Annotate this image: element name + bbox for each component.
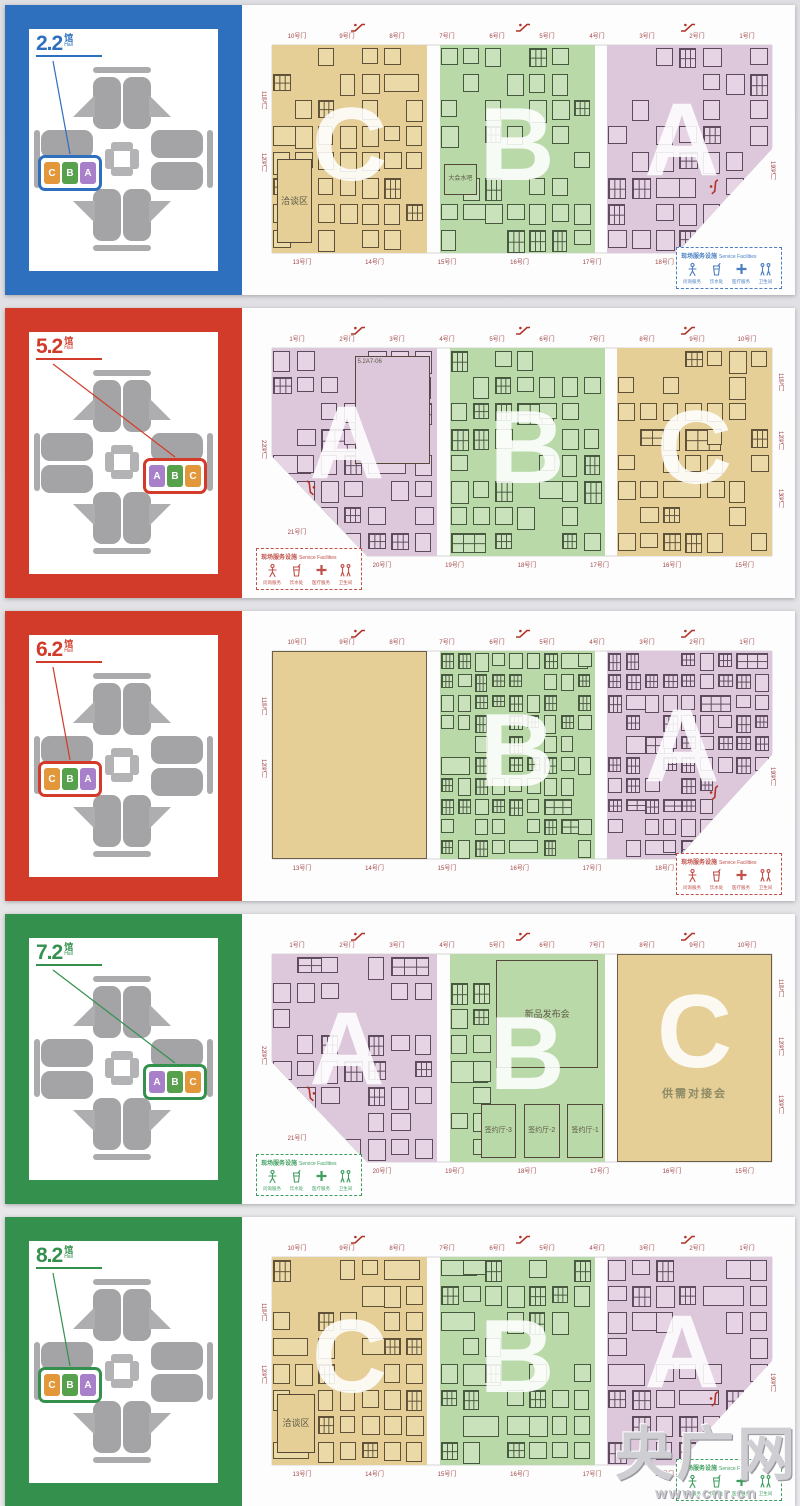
booth [473, 507, 490, 525]
booth [681, 715, 695, 731]
booth [679, 126, 697, 143]
booth [663, 715, 678, 732]
hall-suffix-en: Hall [64, 952, 73, 957]
hall-label: 5.2 馆Hall [36, 337, 102, 360]
gate-label: 8号门 [639, 940, 654, 949]
booth [463, 74, 479, 93]
booth [344, 1061, 363, 1082]
venue-center [111, 167, 133, 176]
service-legend: 现场服务设施Service Facilities问询服务饮水处医疗服务卫生间 [256, 1154, 362, 1196]
booth [527, 653, 540, 668]
booth [755, 695, 769, 710]
service-legend: 现场服务设施Service Facilities问询服务饮水处医疗服务卫生间 [676, 247, 782, 289]
gate-label: 3号门 [639, 637, 654, 646]
hall-petal [151, 1342, 203, 1370]
gate-label: 15号门 [438, 257, 457, 266]
zone-chip-B: B [167, 1071, 183, 1093]
venue-minimap: CBA [29, 1241, 218, 1483]
hall-petal [123, 189, 151, 241]
hall-petal [151, 1039, 203, 1067]
area-label: 新品发布会 [496, 960, 598, 1068]
gate-label: 11号门 [259, 1303, 268, 1321]
hall-label: 8.2 馆Hall [36, 1246, 102, 1269]
zone-C: C [617, 348, 772, 556]
booth [475, 799, 489, 816]
legend-item-label: 卫生间 [759, 884, 773, 890]
zone-chip-B: B [62, 162, 78, 184]
booth [485, 1260, 502, 1283]
booth [517, 507, 534, 530]
gate-label: 5号门 [489, 334, 504, 343]
booth [632, 1416, 651, 1437]
gate-label: 18号门 [518, 1166, 537, 1175]
booth [492, 778, 505, 795]
venue-center [105, 1058, 114, 1078]
booth [729, 403, 746, 421]
booth [451, 533, 486, 553]
booth [441, 1312, 475, 1331]
booth [391, 957, 429, 977]
escalator-icon [680, 19, 696, 37]
legend-item-label: 饮水处 [710, 884, 724, 890]
venue-center [130, 452, 139, 472]
gate-label: 12号门 [259, 153, 268, 172]
booth [656, 152, 675, 172]
booth [451, 1035, 467, 1055]
booth [663, 695, 678, 713]
booth [632, 230, 651, 250]
booth [415, 983, 432, 1000]
area-label: 5.2A7-06 [355, 356, 431, 464]
zone-B: B [440, 1257, 595, 1465]
gate-label: 17号门 [590, 1166, 609, 1175]
booth [529, 1390, 545, 1408]
gate-label: 3号门 [639, 31, 654, 40]
gate-label: 1号门 [739, 31, 754, 40]
booth [318, 230, 336, 252]
booth [707, 403, 723, 422]
booth [561, 757, 575, 771]
venue-minimap: CBA [29, 635, 218, 877]
booth [441, 230, 457, 252]
booth [391, 533, 409, 550]
hall-petal [93, 683, 121, 735]
booth [384, 1286, 401, 1308]
booth [561, 674, 574, 691]
zone-chip-A: A [149, 1071, 165, 1093]
zone-B: 大会水吧B [440, 45, 595, 253]
venue-center [111, 773, 133, 782]
booth [509, 778, 522, 792]
booth [492, 674, 505, 687]
gate-label: 5号门 [539, 1243, 554, 1252]
hall-petal [93, 1098, 121, 1150]
booth [495, 377, 511, 394]
legend-title-en: Service Facilities [299, 1161, 337, 1167]
hall-petal [123, 492, 151, 544]
booth [718, 736, 733, 750]
booth [295, 100, 312, 119]
booth [517, 351, 533, 372]
booth [473, 403, 490, 419]
hall-petal [41, 1039, 93, 1067]
booth [578, 840, 591, 858]
booth [584, 533, 601, 552]
booth [273, 1260, 291, 1282]
gate-label: 1号门 [739, 637, 754, 646]
booth [584, 377, 602, 394]
booth [736, 674, 750, 689]
booth [663, 840, 676, 853]
booth [492, 653, 504, 666]
booth [507, 1286, 525, 1308]
booth [539, 455, 555, 472]
venue-center [130, 1058, 139, 1078]
booth [362, 152, 380, 171]
booth [750, 126, 768, 146]
gate-label: 10号门 [738, 334, 757, 343]
hall-corner-triangle [73, 807, 95, 829]
booth [608, 178, 625, 199]
booth [608, 1390, 625, 1408]
hall-cap [93, 245, 151, 251]
zone-B: 新品发布会签约厅-3签约厅-2签约厅-1B [450, 954, 605, 1162]
legend-title-en: Service Facilities [719, 1466, 757, 1472]
gate-label: 11号门 [776, 979, 785, 997]
booth [384, 1364, 400, 1384]
booth [750, 1260, 767, 1281]
hall-petal [151, 768, 203, 796]
gate-label: 13号门 [776, 489, 785, 508]
booth [618, 377, 634, 393]
booth [415, 507, 434, 525]
booth [509, 695, 522, 712]
booth [473, 1009, 489, 1025]
booth [451, 1113, 468, 1129]
gate-label: 7号门 [439, 637, 454, 646]
hall-cap [34, 433, 40, 491]
hall-petal [151, 736, 203, 764]
hall-corner-triangle [73, 504, 95, 526]
gate-label: 13号门 [293, 1469, 312, 1478]
legend-title: 现场服务设施Service Facilities [261, 552, 357, 561]
venue-center [105, 1361, 114, 1381]
escalator-icon [680, 322, 696, 340]
booth [544, 674, 557, 690]
booth [707, 351, 723, 367]
booth [362, 74, 380, 94]
booth [626, 653, 639, 670]
escalator-icon [350, 19, 366, 37]
booth [527, 695, 540, 714]
booth [529, 204, 545, 225]
booth [700, 757, 713, 771]
booth [663, 377, 679, 395]
booth [340, 74, 356, 97]
booth [473, 1061, 491, 1082]
booth [729, 507, 746, 526]
booth [529, 1312, 545, 1335]
hall-petal [93, 77, 121, 129]
hall-cap [93, 673, 151, 679]
gate-label: 16号门 [510, 1469, 529, 1478]
booth [458, 840, 470, 858]
booth [318, 204, 335, 223]
gate-label: 7号门 [589, 334, 604, 343]
booth [656, 1312, 673, 1333]
booth [362, 204, 379, 225]
booth [509, 674, 521, 687]
booth [608, 757, 621, 772]
gate-label: 12号门 [776, 431, 785, 450]
booth [700, 653, 714, 671]
floor-plan: 洽谈区CBA10号门9号门8号门7号门6号门5号门4号门3号门2号门1号门13号… [242, 1217, 795, 1506]
hall-number: 6.2 [36, 640, 62, 660]
booth [318, 1416, 334, 1434]
booth [552, 1390, 569, 1409]
booth [297, 1061, 314, 1077]
booth [529, 48, 547, 67]
booth [539, 403, 556, 419]
info-desk-icon: 问询服务 [261, 563, 284, 586]
booth [509, 715, 523, 729]
booth [685, 351, 703, 367]
hall-panel-5-2: 5.2 馆Hall ABC 5.2A7-06ABC1号门2号门3号门4号门5号门… [5, 308, 795, 598]
booth [463, 1442, 480, 1465]
plan-area: 5.2A7-06ABC1号门2号门3号门4号门5号门6号门7号门8号门9号门10… [272, 348, 772, 556]
booth [755, 674, 769, 692]
restroom-icon: 卫生间 [334, 563, 357, 586]
booth [458, 653, 472, 669]
legend-item-label: 饮水处 [290, 1185, 304, 1191]
booth [663, 429, 681, 452]
hall-cap [34, 1039, 40, 1097]
booth [492, 840, 505, 853]
booth [362, 178, 379, 200]
booth [451, 507, 467, 526]
gate-label: 10号门 [288, 1243, 307, 1252]
booth [656, 230, 675, 251]
zone-chip-A: A [149, 465, 165, 487]
gate-label: 8号门 [389, 1243, 404, 1252]
booth [463, 1338, 479, 1356]
zone-tan [272, 651, 427, 859]
booth [458, 799, 472, 815]
booth [736, 757, 750, 774]
booth [562, 429, 579, 450]
booth [751, 429, 767, 448]
gate-label: 3号门 [639, 1243, 654, 1252]
booth [726, 1312, 743, 1335]
booth [718, 674, 732, 687]
booth [340, 1442, 357, 1460]
area-label: 签约厅-3 [481, 1104, 517, 1158]
floor-plan: 洽谈区C大会水吧BA10号门9号门8号门7号门6号门5号门4号门3号门2号门1号… [242, 5, 795, 295]
booth [406, 1416, 424, 1437]
booth [751, 351, 767, 368]
booth [340, 1416, 356, 1433]
water-icon: 饮水处 [705, 868, 728, 891]
booth [384, 48, 400, 66]
restroom-icon: 卫生间 [754, 262, 777, 285]
booth [552, 1286, 568, 1303]
booth [509, 799, 523, 817]
booth [681, 778, 696, 794]
booth [574, 1260, 592, 1283]
booth [441, 653, 455, 669]
plan-area: BA10号门9号门8号门7号门6号门5号门4号门3号门2号门1号门13号门14号… [272, 651, 772, 859]
gate-label: 17号门 [590, 560, 609, 569]
venue-minimap: ABC [29, 938, 218, 1180]
booth [441, 1286, 459, 1306]
booth [726, 152, 743, 172]
booth [507, 74, 524, 97]
booth [321, 481, 340, 503]
booth [340, 178, 356, 196]
booth [318, 100, 334, 118]
booth [608, 230, 627, 248]
plan-area: 洽谈区CBA10号门9号门8号门7号门6号门5号门4号门3号门2号门1号门13号… [272, 1257, 772, 1465]
booth [406, 1442, 422, 1463]
booth [415, 1061, 432, 1078]
booth [297, 429, 316, 446]
booth [321, 1061, 338, 1084]
hall-petal [41, 433, 93, 461]
area-label: 大会水吧 [444, 164, 477, 195]
booth [495, 481, 513, 503]
booth [527, 778, 541, 794]
booth [406, 1364, 423, 1385]
booth [707, 429, 723, 446]
booth [645, 799, 660, 815]
booth [384, 1312, 400, 1331]
booth [529, 1442, 546, 1459]
hall-petal [123, 795, 151, 847]
booth [578, 695, 590, 711]
booth [362, 1260, 378, 1276]
booth [340, 1312, 357, 1330]
booth [574, 1364, 591, 1383]
booth [495, 403, 512, 422]
booth [685, 403, 703, 422]
booth [574, 1442, 591, 1460]
legend-item-label: 卫生间 [759, 278, 773, 284]
zone-C: 供需对接会C [617, 954, 772, 1162]
booth [645, 819, 660, 834]
escalator-icon [515, 625, 531, 643]
booth [562, 377, 579, 397]
booth [552, 48, 570, 65]
booth [736, 653, 768, 668]
hall-sidebar: 6.2 馆Hall CBA [5, 611, 242, 901]
booth [729, 377, 746, 400]
booth [618, 403, 635, 421]
booth [297, 351, 315, 371]
booth [340, 204, 358, 224]
booth [544, 778, 557, 796]
hall-sidebar: 5.2 馆Hall ABC [5, 308, 242, 598]
booth [552, 1416, 568, 1436]
booth [406, 1338, 422, 1355]
booth [578, 819, 592, 834]
highlighted-hall: CBA [38, 155, 102, 191]
booth [273, 1364, 290, 1384]
booth [544, 715, 557, 734]
venue-center [111, 470, 133, 479]
booth [529, 1364, 546, 1383]
booth [656, 1416, 673, 1437]
service-legend: 现场服务设施Service Facilities问询服务饮水处医疗服务卫生间 [256, 548, 362, 590]
booth [632, 1260, 650, 1276]
booth [552, 178, 569, 196]
legend-title-cn: 现场服务设施 [681, 860, 717, 866]
hall-petal [93, 795, 121, 847]
zone-B: B [450, 348, 605, 556]
hall-panel-7-2: 7.2 馆Hall ABC A新品发布会签约厅-3签约厅-2签约厅-1B供需对接… [5, 914, 795, 1204]
hall-cap [93, 1457, 151, 1463]
booth [321, 1035, 338, 1054]
booth [736, 715, 750, 733]
hall-petal [151, 130, 203, 158]
booth [750, 1338, 768, 1360]
booth [495, 429, 512, 450]
booth [608, 1260, 626, 1281]
booth [318, 152, 334, 171]
booth [295, 1364, 312, 1387]
escalator-icon [350, 625, 366, 643]
booth [703, 74, 720, 91]
info-desk-icon: 问询服务 [681, 262, 704, 285]
hall-cap [93, 548, 151, 554]
zone-C: 洽谈区C [272, 45, 427, 253]
booth [608, 1442, 626, 1464]
booth [679, 204, 697, 227]
booth [750, 1286, 767, 1306]
booth [529, 100, 546, 123]
hall-petal [93, 189, 121, 241]
booth [681, 695, 695, 711]
gate-label: 8号门 [639, 334, 654, 343]
gate-label: 16号门 [663, 1166, 682, 1175]
booth [485, 1286, 502, 1306]
legend-item-label: 问询服务 [683, 884, 701, 890]
medical-icon: 医疗服务 [730, 868, 753, 891]
booth [495, 351, 512, 367]
booth [679, 1416, 698, 1437]
booth [578, 674, 590, 687]
booth [750, 100, 768, 119]
hall-petal [93, 1289, 121, 1341]
booth [640, 403, 657, 421]
booth [384, 1260, 420, 1280]
booth [700, 715, 714, 734]
booth [475, 840, 488, 856]
booth [475, 757, 488, 774]
escalator-icon [350, 928, 366, 946]
booth [273, 377, 291, 395]
booth [578, 653, 592, 667]
gate-label: 10号门 [288, 31, 307, 40]
hall-corner-triangle [73, 95, 95, 117]
zone-chip-C: C [44, 1374, 60, 1396]
legend-title-cn: 现场服务设施 [681, 1466, 717, 1472]
booth [626, 778, 640, 794]
booth [507, 204, 525, 221]
legend-item-label: 医疗服务 [312, 579, 330, 585]
hall-panel-2-2: 2.2 馆Hall CBA 洽谈区C大会水吧BA10号门9号门8号门7号门6号门… [5, 5, 795, 295]
gate-label: 4号门 [589, 31, 604, 40]
booth [463, 1416, 499, 1437]
